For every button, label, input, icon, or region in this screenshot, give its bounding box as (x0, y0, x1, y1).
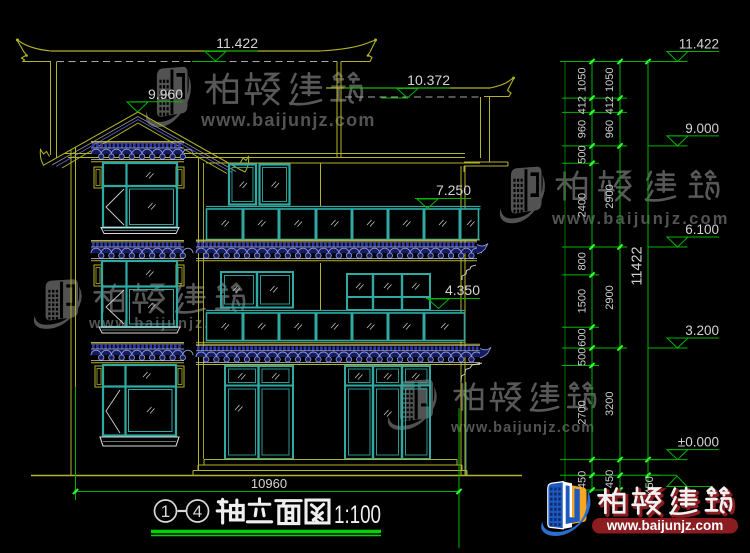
svg-text:412: 412 (577, 96, 589, 114)
svg-text:3.200: 3.200 (685, 323, 719, 338)
svg-text:2900: 2900 (604, 285, 616, 309)
svg-text:4.350: 4.350 (445, 282, 480, 298)
svg-text:6.100: 6.100 (685, 222, 719, 237)
svg-text:www.baijunjz.com: www.baijunjz.com (200, 110, 376, 130)
svg-text:2700: 2700 (577, 400, 589, 424)
svg-text:9.960: 9.960 (148, 86, 183, 102)
svg-text:500: 500 (577, 348, 589, 366)
svg-text:2900: 2900 (604, 184, 616, 208)
svg-text:www.baijunjz.com: www.baijunjz.com (450, 420, 595, 436)
svg-text:960: 960 (577, 120, 589, 138)
svg-text:11.422: 11.422 (216, 35, 258, 51)
svg-text:1050: 1050 (604, 68, 616, 92)
svg-text:600: 600 (577, 328, 589, 346)
svg-text:1:100: 1:100 (334, 501, 381, 529)
svg-text:±0.000: ±0.000 (678, 435, 719, 450)
svg-text:11.422: 11.422 (679, 37, 719, 52)
svg-text:1500: 1500 (577, 289, 589, 313)
svg-text:1: 1 (161, 502, 170, 521)
svg-text:500: 500 (577, 145, 589, 163)
svg-text:4: 4 (193, 502, 202, 521)
svg-text:960: 960 (604, 120, 616, 138)
svg-text:450: 450 (604, 470, 616, 488)
svg-text:3200: 3200 (604, 392, 616, 416)
svg-text:412: 412 (604, 96, 616, 114)
svg-text:10960: 10960 (251, 476, 287, 491)
svg-text:800: 800 (577, 252, 589, 270)
svg-text:450: 450 (577, 471, 589, 489)
svg-text:10.372: 10.372 (407, 72, 450, 88)
svg-text:1050: 1050 (577, 68, 589, 92)
svg-text:7.250: 7.250 (436, 182, 471, 198)
svg-text:2400: 2400 (577, 193, 589, 217)
svg-text:www.baijunjz.com: www.baijunjz.com (606, 518, 724, 533)
svg-text:9.000: 9.000 (685, 121, 719, 136)
svg-text:11422: 11422 (630, 246, 646, 285)
